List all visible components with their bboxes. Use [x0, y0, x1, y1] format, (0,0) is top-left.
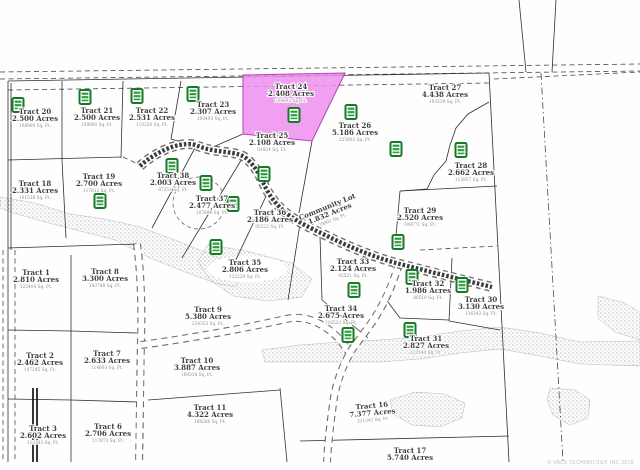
tract-acreage: 4.322 Acres — [187, 410, 233, 419]
lot-marker-icon[interactable] — [456, 143, 467, 157]
lot-marker-icon[interactable] — [201, 176, 212, 190]
parcel-boundary-line — [519, 0, 526, 72]
tract-label: Tract 175.740 Acres — [387, 446, 433, 462]
tract-square-feet: 193319 Sq. Ft. — [429, 100, 461, 105]
tract-acreage: 2.633 Acres — [84, 356, 130, 365]
tract-square-feet: 95222 Sq. Ft. — [255, 225, 285, 230]
lot-marker-icon[interactable] — [393, 235, 404, 249]
tract-label: Tract 222.531 Acres110250 Sq. Ft. — [129, 106, 175, 128]
dashed-boundary-line — [494, 72, 640, 79]
parcel-boundary-line — [320, 236, 322, 300]
tract-acreage: 2.500 Acres — [12, 114, 58, 123]
tract-label: Tract 232.307 Acres100493 Sq. Ft. — [190, 100, 236, 122]
tract-label: Tract 62.706 Acres117873 Sq. Ft. — [85, 422, 131, 444]
parcel-boundary-line — [400, 318, 449, 320]
tract-acreage: 5.740 Acres — [387, 453, 433, 462]
tract-acreage: 4.438 Acres — [422, 90, 468, 99]
tract-acreage: 2.186 Acres — [247, 215, 293, 224]
lot-marker-icon[interactable] — [457, 278, 468, 292]
watermark: © VALS TECHNOLOGY INC 2018 — [547, 460, 634, 466]
tract-label: Tract 265.186 Acres225902 Sq. Ft. — [332, 121, 378, 143]
tract-square-feet: 107898 Sq. Ft. — [196, 211, 228, 216]
tract-acreage: 3.300 Acres — [82, 274, 128, 283]
lot-marker-icon[interactable] — [211, 240, 222, 254]
plat-map-page: Tract 202.500 Acres108900 Sq. Ft.Tract 2… — [0, 0, 640, 470]
parcel-boundary-line — [171, 81, 181, 139]
tract-label: Tract 12.810 Acres122404 Sq. Ft. — [13, 268, 59, 290]
tract-label: Tract 292.520 Acres109771 Sq. Ft. — [397, 206, 443, 228]
tract-square-feet: 100493 Sq. Ft. — [197, 117, 229, 122]
tract-square-feet: 122229 Sq. Ft. — [229, 275, 261, 280]
parcel-boundary-line — [8, 399, 138, 402]
tract-square-feet: 104892 Sq. Ft. — [275, 99, 307, 104]
tract-acreage: 3.887 Acres — [174, 363, 220, 372]
tract-label: Tract 382.003 Acres87251 Sq. Ft. — [150, 171, 196, 193]
tract-square-feet: 101538 Sq. Ft. — [19, 196, 51, 201]
tract-acreage: 1.986 Acres — [405, 286, 451, 295]
tract-acreage: 2.124 Acres — [330, 264, 376, 273]
creek-stipple-area — [390, 392, 465, 427]
tract-acreage: 2.806 Acres — [222, 265, 268, 274]
tract-square-feet: 114693 Sq. Ft. — [91, 366, 123, 371]
tract-label: Tract 22.462 Acres107245 Sq. Ft. — [17, 351, 63, 373]
lot-marker-icon[interactable] — [346, 105, 357, 119]
tract-acreage: 2.706 Acres — [85, 429, 131, 438]
tract-label: Tract 192.700 Acres117612 Sq. Ft. — [76, 172, 122, 194]
tract-label: Tract 332.124 Acres92521 Sq. Ft. — [330, 257, 376, 279]
tract-square-feet: 108900 Sq. Ft. — [19, 124, 51, 129]
parcel-boundary-line — [280, 388, 287, 462]
parcel-boundary-line — [121, 81, 123, 158]
tract-acreage: 2.108 Acres — [249, 138, 295, 147]
tract-square-feet: 86510 Sq. Ft. — [413, 296, 443, 301]
tract-acreage: 2.331 Acres — [12, 186, 58, 195]
creek-stipple-area — [598, 296, 640, 340]
tract-acreage: 2.662 Acres — [448, 168, 494, 177]
parcel-boundary-line — [489, 73, 509, 462]
lot-marker-icon[interactable] — [188, 87, 199, 101]
tract-acreage: 3.130 Acres — [458, 302, 504, 311]
tract-acreage: 2.462 Acres — [17, 358, 63, 367]
tract-square-feet: 234353 Sq. Ft. — [192, 322, 224, 327]
tract-acreage: 2.675 Acres — [318, 311, 364, 320]
tract-square-feet: 123144 Sq. Ft. — [410, 351, 442, 356]
tract-square-feet: 116523 Sq. Ft. — [325, 321, 357, 326]
tract-acreage: 2.003 Acres — [150, 178, 196, 187]
tract-acreage: 2.307 Acres — [190, 107, 236, 116]
tract-label: Tract 202.500 Acres108900 Sq. Ft. — [12, 107, 58, 129]
tract-square-feet: 92521 Sq. Ft. — [338, 274, 368, 279]
tract-acreage: 2.477 Acres — [189, 201, 235, 210]
tract-square-feet: 122404 Sq. Ft. — [20, 285, 52, 290]
tract-square-feet: 115957 Sq. Ft. — [455, 178, 487, 183]
tract-label: Tract 321.986 Acres86510 Sq. Ft. — [405, 279, 451, 301]
tract-square-feet: 188266 Sq. Ft. — [194, 420, 226, 425]
tract-label: Tract 32.602 Acres113343 Sq. Ft. — [20, 424, 66, 446]
parcel-boundary-line — [299, 141, 312, 213]
tract-label: Tract 362.186 Acres95222 Sq. Ft. — [247, 208, 293, 230]
tract-acreage: 2.827 Acres — [403, 341, 449, 350]
tract-label: Tract 303.130 Acres136343 Sq. Ft. — [458, 295, 504, 317]
tract-label: Tract 342.675 Acres116523 Sq. Ft. — [318, 304, 364, 326]
tract-label: Tract 83.300 Acres143748 Sq. Ft. — [82, 267, 128, 289]
parcel-boundary-line — [8, 157, 121, 160]
tract-acreage: 2.408 Acres — [268, 89, 314, 98]
tract-square-feet: 110250 Sq. Ft. — [136, 123, 168, 128]
dashed-boundary-line — [123, 157, 140, 165]
tract-acreage: 5.380 Acres — [185, 312, 231, 321]
creek-stipple-area — [547, 388, 590, 425]
tract-label: Tract 274.438 Acres193319 Sq. Ft. — [422, 83, 468, 105]
tract-acreage: 2.700 Acres — [76, 179, 122, 188]
tract-label: Tract 182.331 Acres101538 Sq. Ft. — [12, 179, 58, 201]
tract-square-feet: 109771 Sq. Ft. — [404, 223, 436, 228]
tract-label: Tract 252.108 Acres91824 Sq. Ft. — [249, 131, 295, 153]
parcel-boundary-line — [400, 186, 497, 191]
tract-acreage: 2.531 Acres — [129, 113, 175, 122]
tract-square-feet: 108900 Sq. Ft. — [81, 123, 113, 128]
parcel-boundary-line — [148, 390, 280, 400]
tract-acreage: 5.186 Acres — [332, 128, 378, 137]
parcel-boundary-line — [8, 330, 137, 333]
lot-marker-icon[interactable] — [95, 194, 106, 208]
tract-square-feet: 169318 Sq. Ft. — [181, 373, 213, 378]
lot-marker-icon[interactable] — [80, 90, 91, 104]
lot-marker-icon[interactable] — [259, 167, 270, 181]
plat-map: Tract 202.500 Acres108900 Sq. Ft.Tract 2… — [0, 0, 640, 470]
lot-marker-icon[interactable] — [289, 108, 300, 122]
tract-square-feet: 117612 Sq. Ft. — [83, 189, 115, 194]
tract-acreage: 2.602 Acres — [20, 431, 66, 440]
tract-label: Tract 103.887 Acres169318 Sq. Ft. — [174, 356, 220, 378]
tract-label: Tract 212.500 Acres108900 Sq. Ft. — [74, 106, 120, 128]
dashed-boundary-line — [0, 64, 640, 72]
lot-marker-icon[interactable] — [349, 283, 360, 297]
tract-label: Tract 114.322 Acres188266 Sq. Ft. — [187, 403, 233, 425]
parcel-boundary-line — [8, 244, 137, 248]
tract-square-feet: 113343 Sq. Ft. — [27, 441, 59, 446]
tract-square-feet: 225902 Sq. Ft. — [339, 138, 371, 143]
creek-stipple-area — [262, 327, 640, 366]
tract-acreage: 2.500 Acres — [74, 113, 120, 122]
road-surface — [327, 264, 399, 462]
lot-marker-icon[interactable] — [391, 142, 402, 156]
tract-square-feet: 91824 Sq. Ft. — [257, 148, 287, 153]
tract-label: Tract 282.662 Acres115957 Sq. Ft. — [448, 161, 494, 183]
tract-square-feet: 87251 Sq. Ft. — [158, 188, 188, 193]
lot-marker-icon[interactable] — [343, 328, 354, 342]
tract-label: Tract 372.477 Acres107898 Sq. Ft. — [189, 194, 235, 216]
tract-label: Tract 72.633 Acres114693 Sq. Ft. — [84, 349, 130, 371]
dashed-boundary-line — [420, 246, 497, 250]
tract-square-feet: 143748 Sq. Ft. — [89, 284, 121, 289]
parcel-boundary-line — [449, 321, 500, 330]
tract-label: Tract 95.380 Acres234353 Sq. Ft. — [185, 305, 231, 327]
tract-acreage: 2.520 Acres — [397, 213, 443, 222]
tract-square-feet: 136343 Sq. Ft. — [465, 312, 497, 317]
tract-acreage: 2.810 Acres — [13, 275, 59, 284]
tract-square-feet: 117873 Sq. Ft. — [92, 439, 124, 444]
tract-label: Tract 167.377 Acres321342 Sq. Ft. — [348, 399, 396, 425]
lot-marker-icon[interactable] — [132, 89, 143, 103]
tract-square-feet: 107245 Sq. Ft. — [24, 368, 56, 373]
parcel-boundary-line — [552, 0, 556, 72]
